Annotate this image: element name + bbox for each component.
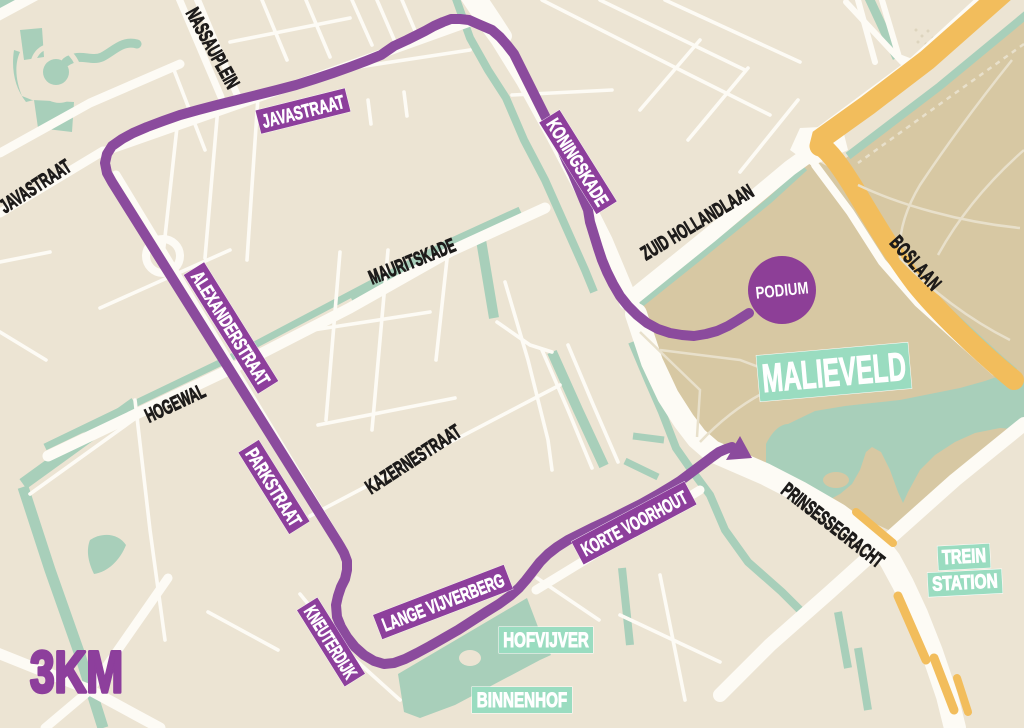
svg-text:BINNENHOF: BINNENHOF <box>477 689 567 712</box>
svg-text:TREIN: TREIN <box>941 544 986 568</box>
svg-text:HOFVIJVER: HOFVIJVER <box>503 629 589 652</box>
svg-text:3KM: 3KM <box>30 639 123 704</box>
svg-text:STATION: STATION <box>932 570 999 595</box>
